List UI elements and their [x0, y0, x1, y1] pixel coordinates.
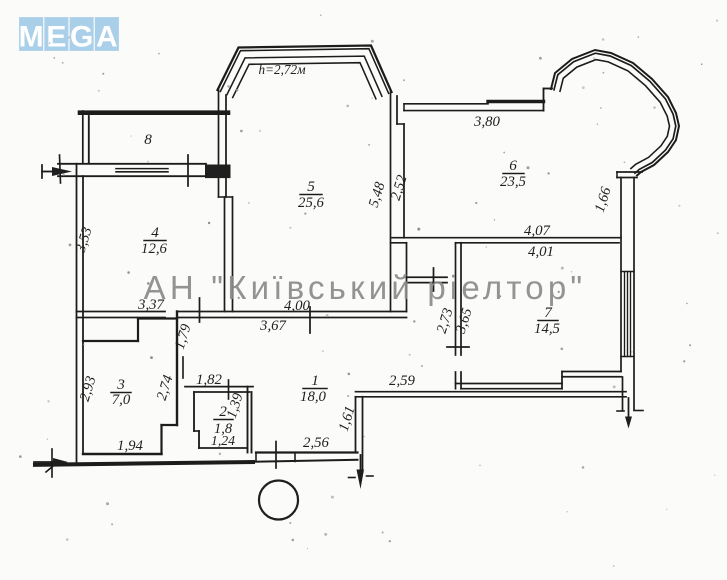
svg-text:3,67: 3,67	[259, 318, 286, 334]
svg-text:5: 5	[307, 178, 315, 195]
svg-text:1,94: 1,94	[117, 438, 143, 454]
svg-text:4: 4	[151, 224, 159, 241]
svg-text:14,5: 14,5	[534, 321, 560, 337]
svg-text:12,6: 12,6	[141, 241, 167, 257]
svg-text:4,07: 4,07	[524, 223, 550, 239]
svg-text:2,56: 2,56	[303, 435, 329, 451]
svg-text:2,59: 2,59	[389, 373, 415, 389]
svg-text:3: 3	[116, 376, 125, 393]
svg-text:8: 8	[144, 131, 152, 148]
svg-text:7,0: 7,0	[112, 392, 131, 408]
svg-text:1,24: 1,24	[211, 433, 235, 448]
svg-text:18,0: 18,0	[300, 389, 326, 405]
svg-text:E: E	[46, 21, 66, 54]
svg-text:25,6: 25,6	[298, 195, 324, 211]
svg-text:G: G	[70, 21, 93, 54]
svg-text:6: 6	[509, 157, 517, 174]
svg-text:3,80: 3,80	[473, 114, 500, 130]
svg-text:АН "Київський ріелтор": АН "Київський ріелтор"	[144, 269, 587, 306]
svg-text:1: 1	[311, 372, 319, 389]
svg-text:23,5: 23,5	[500, 174, 526, 190]
svg-text:A: A	[96, 21, 118, 54]
svg-text:4,01: 4,01	[528, 244, 554, 260]
svg-text:h=2,72м: h=2,72м	[259, 62, 307, 77]
svg-text:1,82: 1,82	[196, 372, 222, 388]
svg-text:M: M	[19, 21, 44, 54]
